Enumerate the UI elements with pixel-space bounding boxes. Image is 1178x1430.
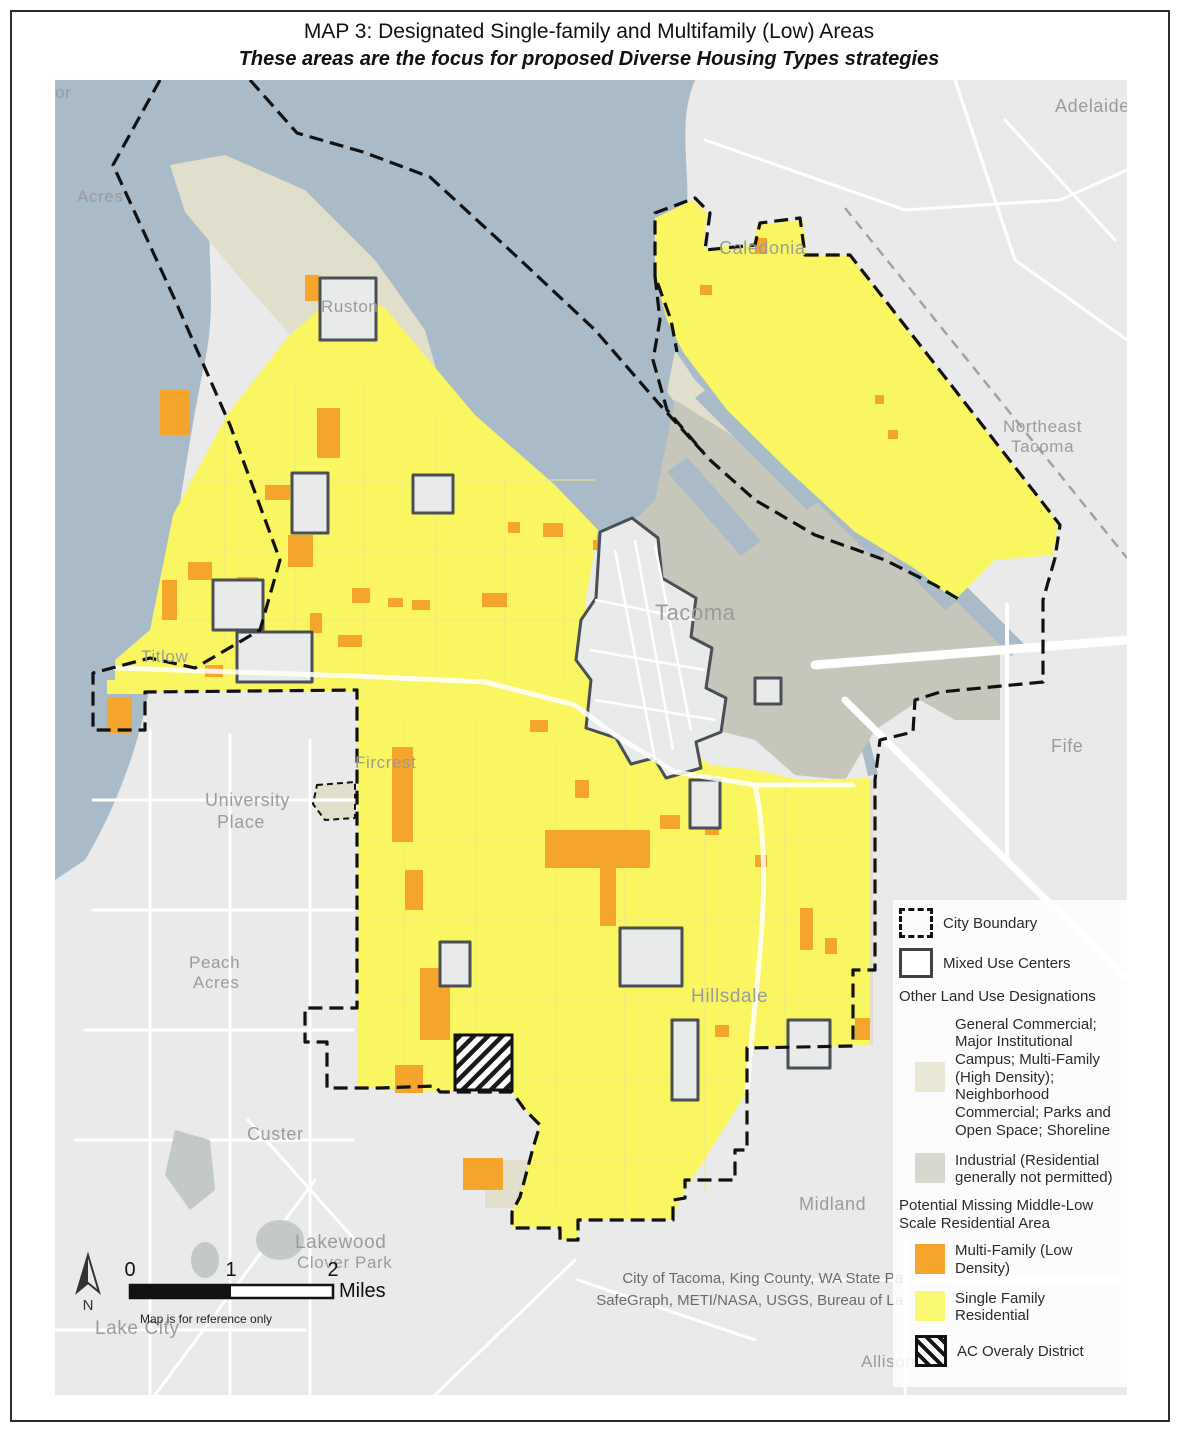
ac-overlay-district	[455, 1035, 512, 1090]
legend-label: Industrial (Residential generally not pe…	[955, 1150, 1115, 1187]
scale-unit: Miles	[339, 1280, 386, 1302]
place-label: Place	[217, 812, 265, 832]
legend-header-potential: Potential Missing Middle-Low Scale Resid…	[899, 1197, 1119, 1232]
place-label: Peach	[189, 953, 240, 972]
legend: City Boundary Mixed Use Centers Other La…	[893, 900, 1127, 1387]
legend-multi-family: Multi-Family (Low Density)	[915, 1240, 1119, 1277]
legend-single-family: Single Family Residential	[915, 1288, 1119, 1325]
legend-label: Mixed Use Centers	[943, 953, 1071, 973]
title-block: MAP 3: Designated Single-family and Mult…	[0, 20, 1178, 71]
scale-tick-1: 1	[225, 1259, 236, 1281]
mixed-use-swatch-icon	[899, 948, 933, 978]
legend-general-commercial: General Commercial; Major Institutional …	[915, 1014, 1119, 1140]
scale-tick-0: 0	[124, 1259, 135, 1281]
legend-ac-overlay: AC Overaly District	[915, 1335, 1119, 1367]
single-family-swatch-icon	[915, 1291, 945, 1321]
place-label: or	[55, 83, 71, 102]
general-commercial-swatch-icon	[915, 1062, 945, 1092]
map-disclaimer: Map is for reference only	[140, 1312, 272, 1326]
legend-mixed-use: Mixed Use Centers	[899, 948, 1119, 978]
legend-label: Single Family Residential	[955, 1288, 1105, 1325]
place-label: Caledonia	[719, 238, 806, 258]
place-label: Acres	[193, 973, 239, 992]
place-label: Northeast	[1003, 417, 1082, 436]
legend-header-other: Other Land Use Designations	[899, 988, 1119, 1006]
city-boundary-swatch-icon	[899, 908, 933, 938]
place-label: Hillsdale	[691, 986, 768, 1007]
place-label: University	[205, 790, 290, 810]
legend-city-boundary: City Boundary	[899, 908, 1119, 938]
attribution-line1: City of Tacoma, King County, WA State Pa	[622, 1270, 903, 1287]
page: MAP 3: Designated Single-family and Mult…	[0, 0, 1178, 1430]
place-label: Adelaide	[1055, 96, 1127, 116]
attribution-line2: SafeGraph, METI/NASA, USGS, Bureau of La	[596, 1292, 903, 1309]
scale-tick-2: 2	[327, 1259, 338, 1281]
place-label: Tacoma	[1011, 437, 1074, 456]
north-label: N	[83, 1297, 94, 1314]
legend-label: General Commercial; Major Institutional …	[955, 1014, 1115, 1140]
place-label: Titlow	[141, 647, 188, 666]
ac-overlay-swatch-icon	[915, 1335, 947, 1367]
place-label: Fircrest	[355, 753, 416, 772]
legend-label: City Boundary	[943, 913, 1037, 933]
place-label: Midland	[799, 1194, 866, 1214]
place-label-tacoma: Tacoma	[655, 600, 736, 625]
legend-industrial: Industrial (Residential generally not pe…	[915, 1150, 1119, 1187]
place-label: Custer	[247, 1124, 304, 1144]
place-label: Clover Park	[297, 1253, 392, 1272]
place-label: Acres	[77, 187, 123, 206]
industrial-swatch-icon	[915, 1153, 945, 1183]
page-title: MAP 3: Designated Single-family and Mult…	[0, 20, 1178, 44]
page-subtitle: These areas are the focus for proposed D…	[0, 48, 1178, 71]
place-label: Ruston	[321, 297, 378, 316]
place-label: Lakewood	[295, 1232, 386, 1253]
place-label: Fife	[1051, 736, 1083, 756]
multi-family-swatch-icon	[915, 1244, 945, 1274]
legend-label: Multi-Family (Low Density)	[955, 1240, 1105, 1277]
legend-label: AC Overaly District	[957, 1341, 1084, 1361]
